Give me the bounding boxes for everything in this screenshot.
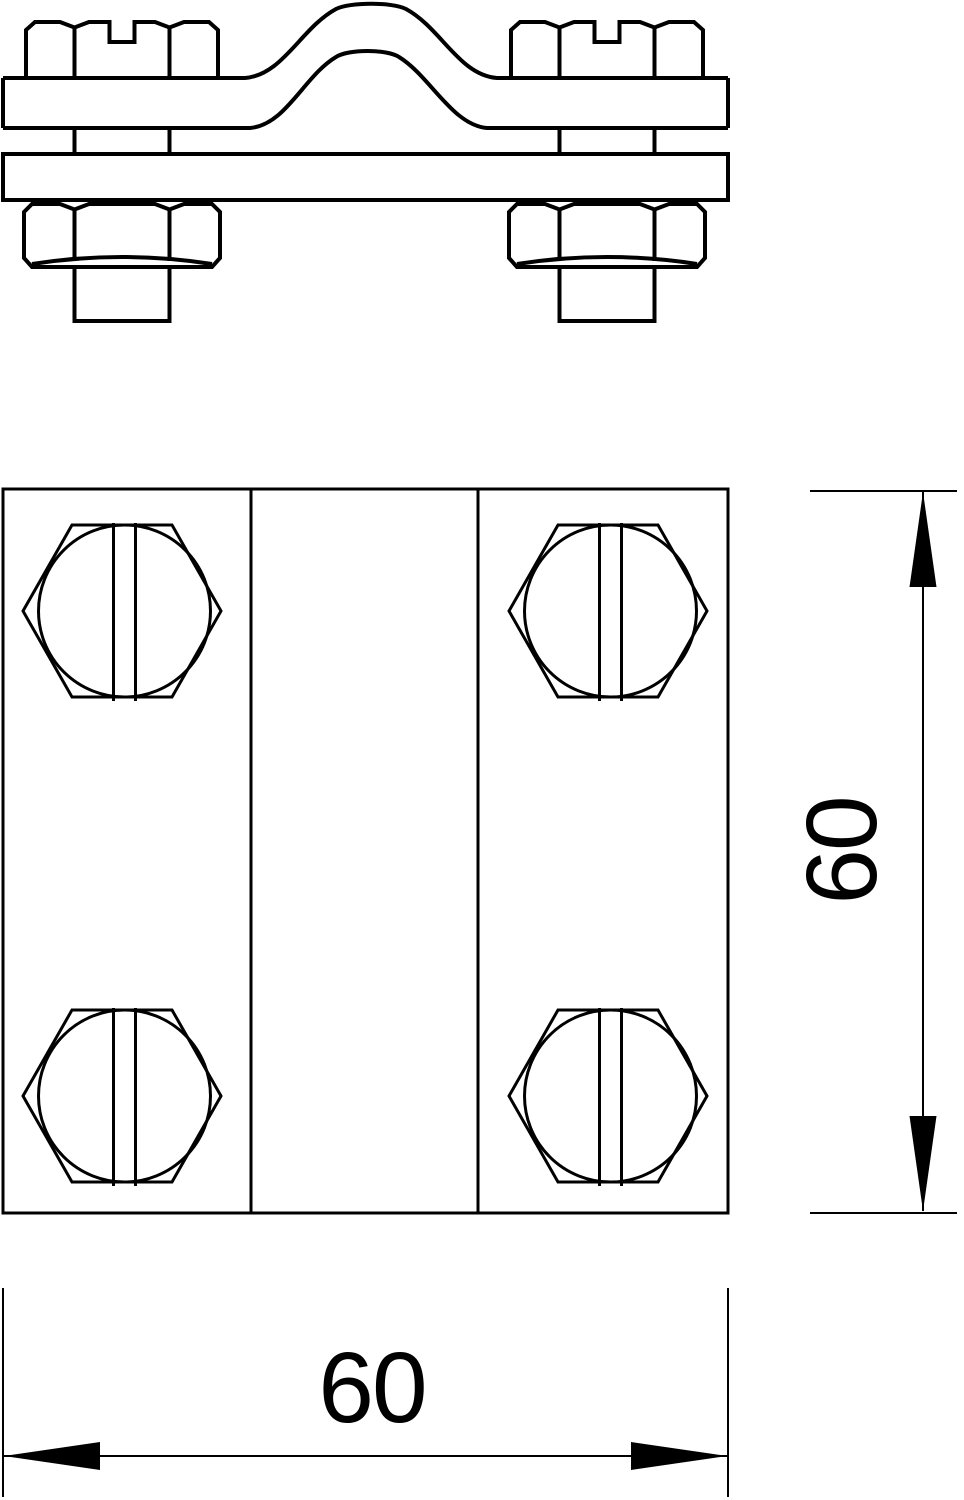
arrowhead-up xyxy=(910,492,937,587)
technical-drawing-page: 60 60 xyxy=(0,0,964,1500)
hex-bolt-bottom-left xyxy=(23,1008,221,1186)
bolt-left-front xyxy=(24,22,220,321)
hex-bolt-bottom-right xyxy=(509,1008,707,1186)
height-dimension: 60 xyxy=(786,491,957,1213)
arrowhead-left xyxy=(4,1442,100,1470)
hex-bolt-top-right xyxy=(509,523,707,701)
height-dimension-label: 60 xyxy=(786,797,898,904)
cross-connector-drawing: 60 60 xyxy=(0,0,964,1500)
base-plate xyxy=(3,154,728,200)
clamp-plate-outline xyxy=(3,489,728,1213)
plan-view xyxy=(3,489,728,1213)
hex-bolt-top-left xyxy=(23,523,221,701)
width-dimension: 60 xyxy=(3,1288,728,1497)
width-dimension-label: 60 xyxy=(318,1332,425,1444)
front-view xyxy=(3,4,728,321)
bolt-right-front xyxy=(509,22,705,321)
saddle-plate-bottom-edge xyxy=(3,51,728,128)
arrowhead-down xyxy=(910,1116,937,1211)
arrowhead-right xyxy=(631,1442,727,1470)
